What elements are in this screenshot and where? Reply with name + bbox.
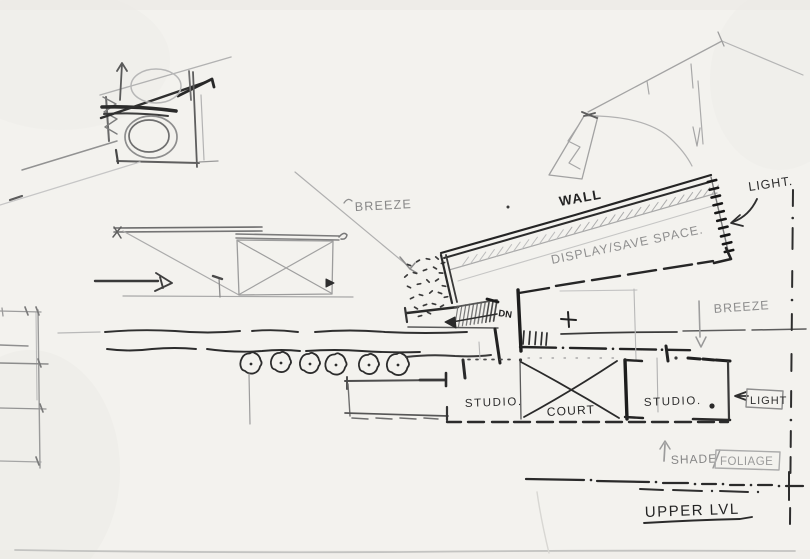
svg-text:UPPER LVL: UPPER LVL [645, 501, 740, 521]
svg-text:COURT: COURT [546, 402, 595, 419]
svg-text:FOLIAGE: FOLIAGE [720, 456, 773, 468]
svg-text:LIGHT: LIGHT [750, 395, 787, 407]
svg-text:SHADE: SHADE [671, 451, 718, 467]
svg-text:STUDIO.: STUDIO. [644, 395, 702, 409]
svg-text:BREEZE: BREEZE [354, 197, 412, 214]
svg-text:DN: DN [498, 308, 513, 321]
svg-text:STUDIO.: STUDIO. [465, 396, 523, 410]
